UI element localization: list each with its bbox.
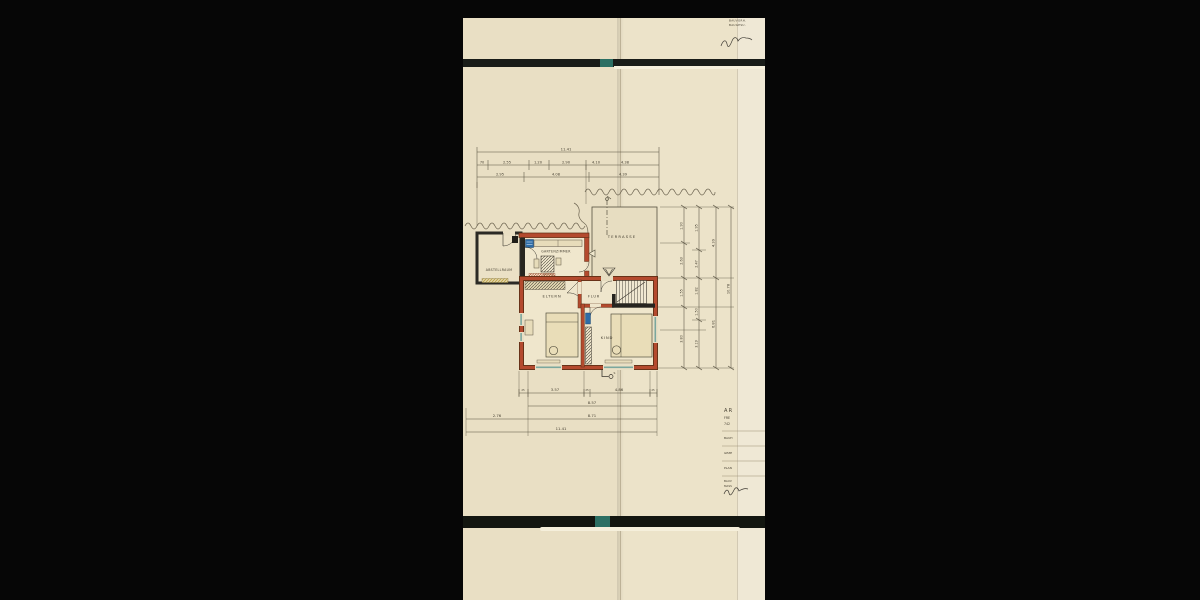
staircase	[617, 281, 647, 304]
chimney-hatch	[586, 327, 592, 364]
handwritten-signature-top	[721, 38, 752, 47]
header-line-2: BAUGESU.	[729, 23, 746, 27]
dim-label: 3.80	[680, 335, 684, 343]
dim-label: 8.57	[588, 400, 597, 405]
room-gartenzimmer: GARTENZIMMER	[519, 233, 595, 282]
dim-label: 4.08	[552, 173, 561, 177]
room-label-flur: FLUR	[588, 295, 600, 299]
dim-label: 1.90	[680, 222, 684, 230]
titleblock-architect: AR	[724, 408, 733, 414]
room-label-gartenzimmer: GARTENZIMMER	[541, 250, 571, 254]
dim-label: 2.95	[496, 173, 504, 177]
titleblock-field-3: PLAN	[724, 466, 732, 470]
dim-label: 4.38	[621, 161, 630, 165]
dim-label: 2.63	[680, 257, 684, 265]
dim-label: 4.39	[619, 173, 628, 177]
dim-label: 1.55	[680, 289, 684, 297]
terrace-area: TERRASSE	[592, 196, 657, 278]
scanned-floorplan-sheet: TERRASSE	[0, 0, 1200, 600]
dim-label: 25	[585, 388, 589, 392]
dim-label: 4.10	[592, 161, 601, 165]
titleblock-field-2: GEZE	[724, 451, 732, 455]
stove-fixture-icon	[526, 240, 534, 248]
titleblock-address1: FRE	[724, 416, 730, 420]
title-block: AR FRE 742 BAUH GEZE PLAN BAUV MASS	[722, 408, 765, 495]
dim-label: 2.90	[562, 161, 571, 165]
bed-kind	[611, 314, 652, 357]
main-house-block: ELTERN FLUR KIND	[518, 268, 658, 370]
titleblock-field-1: BAUH	[724, 436, 733, 440]
yellow-hatch-strip	[482, 279, 508, 283]
sheet-header: BAUVORH. BAUGESU.	[721, 19, 752, 47]
dim-label: 4.39	[712, 238, 716, 247]
section-marker: S	[602, 369, 616, 379]
flue-block	[512, 236, 518, 243]
dim-label: 11.41	[561, 147, 572, 152]
dim-label: 11.41	[556, 426, 567, 431]
handwritten-signature-bottom	[724, 488, 748, 495]
dim-label: 8.71	[588, 413, 597, 418]
dim-label: 2.76	[493, 413, 502, 418]
survey-marker-icon	[606, 198, 609, 201]
titleblock-address2: 742	[724, 422, 730, 426]
radiator-fixture-icon	[586, 313, 591, 324]
dim-label: 10.78	[727, 283, 731, 294]
dim-label: 2.47	[695, 260, 699, 268]
dim-label: 1.20	[534, 161, 543, 165]
dim-label: 1.50	[695, 308, 699, 316]
dimension-block-right: 1.90 2.63 1.55 3.80 1.95 2.47 1.82 1.50 …	[657, 205, 734, 370]
room-label-kind: KIND	[601, 335, 614, 340]
dim-label: 1.82	[695, 287, 699, 295]
room-label-terrasse: TERRASSE	[607, 234, 636, 239]
vegetation-scribble	[465, 189, 715, 233]
dim-label: 70	[480, 161, 484, 165]
dim-label: 1.95	[695, 224, 699, 232]
dim-label: 25	[651, 388, 655, 392]
floorplan-drawing: TERRASSE	[0, 0, 1200, 600]
titleblock-field-5: MASS	[724, 484, 732, 488]
table-hatched	[541, 256, 554, 272]
section-marker-label: S	[614, 371, 616, 375]
dimension-block-bottom: 25 3.57 25 4.86 25 8.57 2.76 8.71 11.41	[466, 371, 657, 436]
bed-eltern	[546, 313, 578, 357]
dim-label: 6.81	[712, 320, 716, 328]
dim-label: 2.55	[503, 161, 511, 165]
room-label-eltern: ELTERN	[543, 294, 562, 299]
room-label-abstellraum: ABSTELLRAUM	[486, 268, 513, 272]
room-abstellraum: ABSTELLRAUM	[477, 230, 521, 283]
titleblock-field-4: BAUV	[724, 479, 732, 483]
wardrobe-hatch	[525, 282, 565, 290]
dim-label: 3.19	[695, 340, 699, 348]
header-line-1: BAUVORH.	[729, 19, 746, 23]
dim-label: 4.86	[615, 387, 624, 392]
dim-label: 3.57	[551, 387, 560, 392]
dim-label: 25	[521, 388, 525, 392]
